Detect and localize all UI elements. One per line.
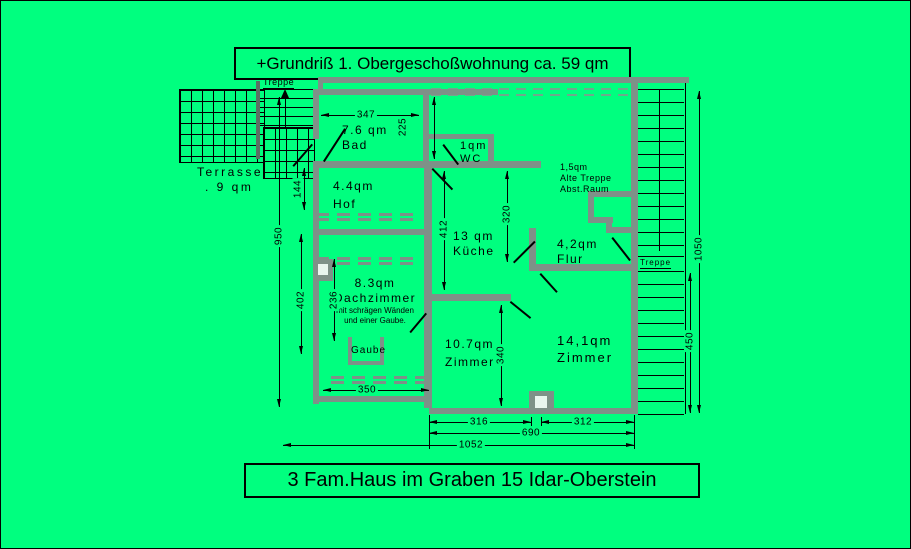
zimmer-gross-area: 14,1qm [557, 332, 613, 349]
dim-text-312: 312 [572, 417, 594, 428]
bad-area: 7.6 qm [342, 123, 388, 138]
bad-name: Bad [342, 138, 388, 153]
wall-left-lower [313, 164, 319, 404]
alte-treppe-name2: Abst.Raum [560, 184, 612, 195]
floor-plan-canvas: +Grundriß 1. Obergeschoßwohnung ca. 59 q… [0, 0, 911, 549]
gaube-text: Gaube [351, 345, 386, 356]
wall-dach-bottom [313, 396, 429, 402]
room-label-alte-treppe: 1,5qm Alte Treppe Abst.Raum [560, 162, 612, 195]
zimmer-klein-area: 10.7qm [445, 335, 495, 353]
terrasse-name: Terrasse [197, 165, 263, 180]
alte-treppe-area: 1,5qm [560, 162, 612, 173]
plan-footer: 3 Fam.Haus im Graben 15 Idar-Oberstein [244, 463, 700, 498]
dim-line-hof-abstand [304, 168, 305, 210]
terrasse-label: Terrasse . 9 qm [197, 165, 263, 195]
wall-right [631, 83, 638, 414]
plan-title: +Grundriß 1. Obergeschoßwohnung ca. 59 q… [234, 47, 631, 80]
dim-text-450: 450 [685, 330, 696, 352]
dim-text-347: 347 [355, 110, 377, 121]
dim-text-1052: 1052 [457, 440, 485, 451]
wall-hof-bottom [316, 229, 424, 235]
room-label-kueche: 13 qm Küche [453, 229, 495, 259]
stair-right-mid-rail [659, 89, 660, 251]
wall-bad-top [313, 89, 498, 95]
zimmer-gross-name: Zimmer [557, 349, 613, 366]
dim-text-412: 412 [439, 218, 450, 240]
dim-text-1050: 1050 [694, 235, 705, 263]
treppe-left-label: Treppe [263, 77, 294, 89]
wall-left-upper [313, 89, 319, 139]
dim-tick-mid2 [541, 417, 542, 426]
dim-tick-left [429, 415, 430, 449]
terrasse-grid [179, 89, 265, 163]
flur-name: Flur [557, 252, 598, 267]
wall-kueche-bottom [429, 294, 511, 301]
dim-tick-mid1 [531, 417, 532, 426]
door-zimmer-gross [540, 273, 558, 293]
door-flur-treppe [611, 237, 630, 261]
dim-text-316: 316 [468, 417, 490, 428]
door-zimmer-klein [510, 301, 531, 319]
treppe-right-text: Treppe [640, 258, 671, 267]
wall-alte-treppe-5 [606, 227, 638, 233]
stair-right-upper-treads [638, 89, 684, 257]
dim-line-bad-tiefe [434, 97, 435, 159]
dachzimmer-note2: und einer Gaube. [323, 316, 427, 326]
dim-text-144: 144 [293, 178, 304, 200]
flur-area: 4,2qm [557, 237, 598, 252]
stair-upper-left-rail [256, 81, 260, 159]
terrasse-area: . 9 qm [197, 180, 263, 195]
room-label-flur: 4,2qm Flur [557, 237, 598, 267]
room-label-zimmer-klein: 10.7qm Zimmer [445, 335, 495, 371]
dim-text-690: 690 [520, 428, 542, 439]
dim-text-350: 350 [356, 385, 378, 396]
stair-direction-arrow-icon [281, 89, 289, 98]
kueche-area: 13 qm [453, 229, 495, 244]
wall-below-bad-wc [313, 161, 541, 168]
wc-name: WC [460, 153, 487, 166]
room-label-wc: 1qm WC [460, 140, 487, 166]
dim-text-402: 402 [296, 289, 307, 311]
kueche-name: Küche [453, 244, 495, 259]
room-label-hof: 4.4qm Hof [333, 177, 374, 213]
dim-text-950: 950 [274, 225, 285, 247]
stair-right-lower-treads [638, 271, 684, 415]
plan-title-text: +Grundriß 1. Obergeschoßwohnung ca. 59 q… [257, 54, 609, 74]
gaube-wall-bottom [348, 361, 384, 365]
kneewall-hof-dashed [316, 213, 421, 221]
gaube-label: Gaube [351, 345, 386, 357]
dim-text-320: 320 [502, 203, 513, 225]
room-label-zimmer-gross: 14,1qm Zimmer [557, 332, 613, 366]
dim-text-225: 225 [398, 116, 409, 138]
zimmer-klein-name: Zimmer [445, 353, 495, 371]
plan-footer-text: 3 Fam.Haus im Graben 15 Idar-Oberstein [287, 469, 656, 492]
alte-treppe-name: Alte Treppe [560, 173, 612, 184]
chimney-left-flue [318, 264, 328, 275]
dim-text-236: 236 [329, 289, 340, 311]
dim-line-links-hoehe [279, 97, 280, 407]
treppe-right-label: Treppe [640, 258, 671, 269]
dim-text-340: 340 [496, 344, 507, 366]
stair-right-outer-rail [685, 83, 686, 414]
wall-bad-wc-divider [423, 95, 429, 165]
kneewall-dach-bottom-dashed [331, 376, 424, 384]
chimney-bottom-flue [535, 396, 547, 408]
hof-name: Hof [333, 195, 374, 213]
wc-area: 1qm [460, 140, 487, 153]
room-label-bad: 7.6 qm Bad [342, 123, 388, 153]
wall-flur-kueche-divider [529, 228, 536, 268]
stair-upper-left-centerline [285, 95, 286, 127]
hof-area: 4.4qm [333, 177, 374, 195]
wall-wc-top [428, 134, 494, 139]
terrasse-grid-strip [263, 127, 315, 179]
treppe-left-text: Treppe [263, 77, 294, 87]
dim-tick-right [634, 415, 635, 449]
